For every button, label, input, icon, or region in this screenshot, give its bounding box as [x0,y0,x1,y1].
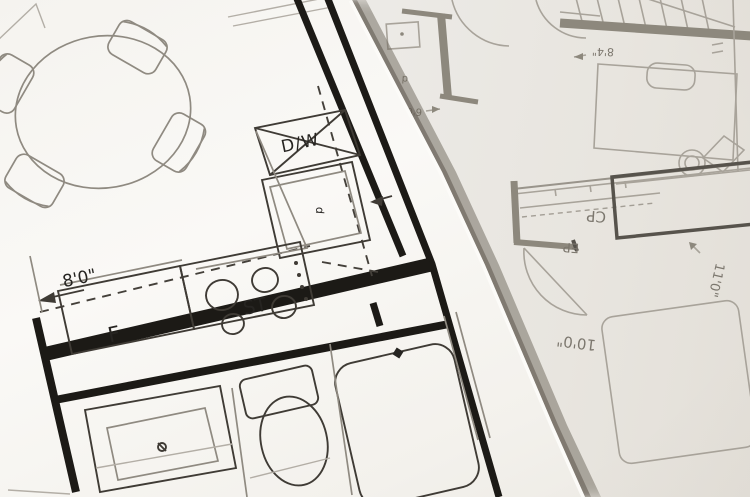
hall-wall [402,11,478,102]
room-dimension-text: 10'0" [556,331,598,354]
closet-dimension: 11'0" [689,242,727,299]
stairs-dimension: 8'4" [574,43,723,60]
dining-table [3,22,203,202]
area-rug [600,299,750,465]
closet-dimension-text: 11'0" [705,262,727,299]
closet-door-swing [524,248,587,315]
wall-door-jamb [373,303,380,326]
bedroom-wall-top [560,23,750,36]
stove-label: ST [241,293,269,320]
closet-wall [513,163,750,196]
dining-chairs [0,16,210,211]
tub-marker-icon [392,347,403,358]
shower [85,386,236,492]
photo-of-floor-plans: 8'4" [0,0,750,497]
faint-frame-lines [0,0,332,42]
kitchen-dimension-text: 8'0" [61,266,99,293]
bed-headboard [646,62,696,90]
kitchen-dimension: 8'0" [30,256,98,312]
light-symbol-icon [679,150,705,176]
dishwasher-label: D/W [279,130,321,158]
dimension-arrow [370,196,392,206]
sink-note: d [313,206,327,214]
stairs-dimension-text: 8'4" [592,45,615,59]
closet-cp-label: CP [586,207,607,226]
toilet [238,364,336,492]
closet-ep-label: EP [562,239,579,255]
